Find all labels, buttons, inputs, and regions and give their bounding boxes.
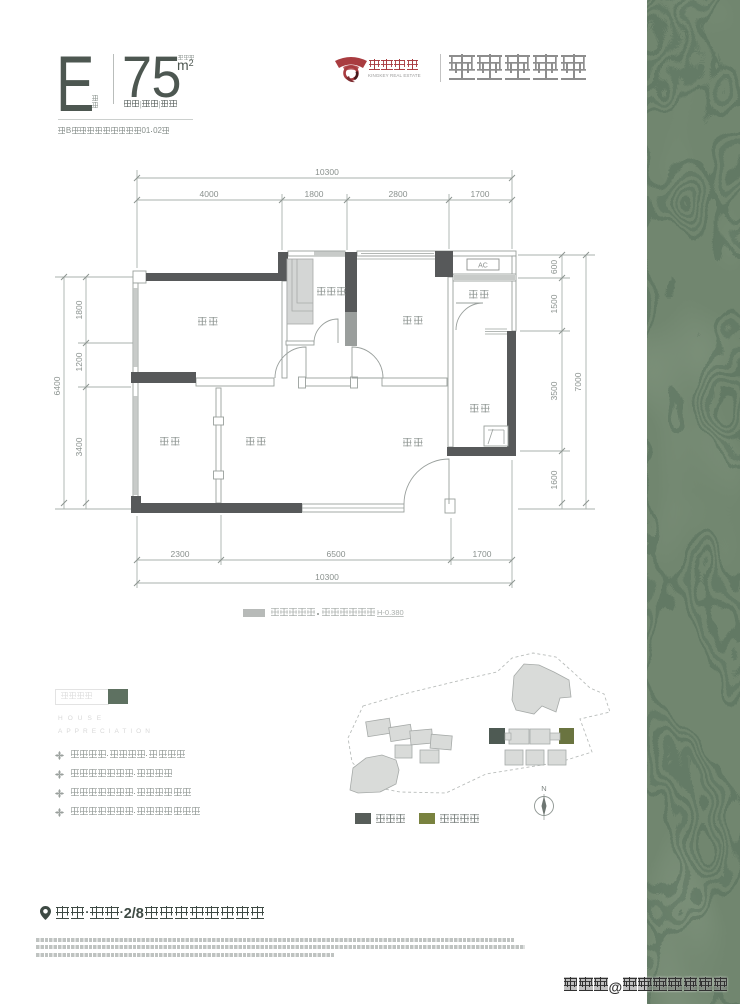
svg-text:H-0.380: H-0.380 (377, 608, 404, 617)
svg-text:1600: 1600 (549, 470, 559, 489)
svg-text:2300: 2300 (171, 549, 190, 559)
svg-text:1700: 1700 (471, 189, 490, 199)
svg-text:1500: 1500 (549, 294, 559, 313)
svg-text:7000: 7000 (573, 372, 583, 391)
svg-text:10300: 10300 (315, 167, 339, 177)
svg-text:AC: AC (478, 263, 488, 270)
svg-text:N: N (541, 784, 546, 793)
svg-text:1800: 1800 (305, 189, 324, 199)
svg-text:1700: 1700 (473, 549, 492, 559)
svg-text:3400: 3400 (74, 437, 84, 456)
svg-text:6500: 6500 (327, 549, 346, 559)
svg-text:6400: 6400 (52, 376, 62, 395)
svg-text:3500: 3500 (549, 381, 559, 400)
svg-text:4000: 4000 (200, 189, 219, 199)
svg-text:600: 600 (549, 260, 559, 274)
svg-text:2800: 2800 (389, 189, 408, 199)
svg-text:1200: 1200 (74, 352, 84, 371)
svg-text:1800: 1800 (74, 300, 84, 319)
svg-text:10300: 10300 (315, 572, 339, 582)
